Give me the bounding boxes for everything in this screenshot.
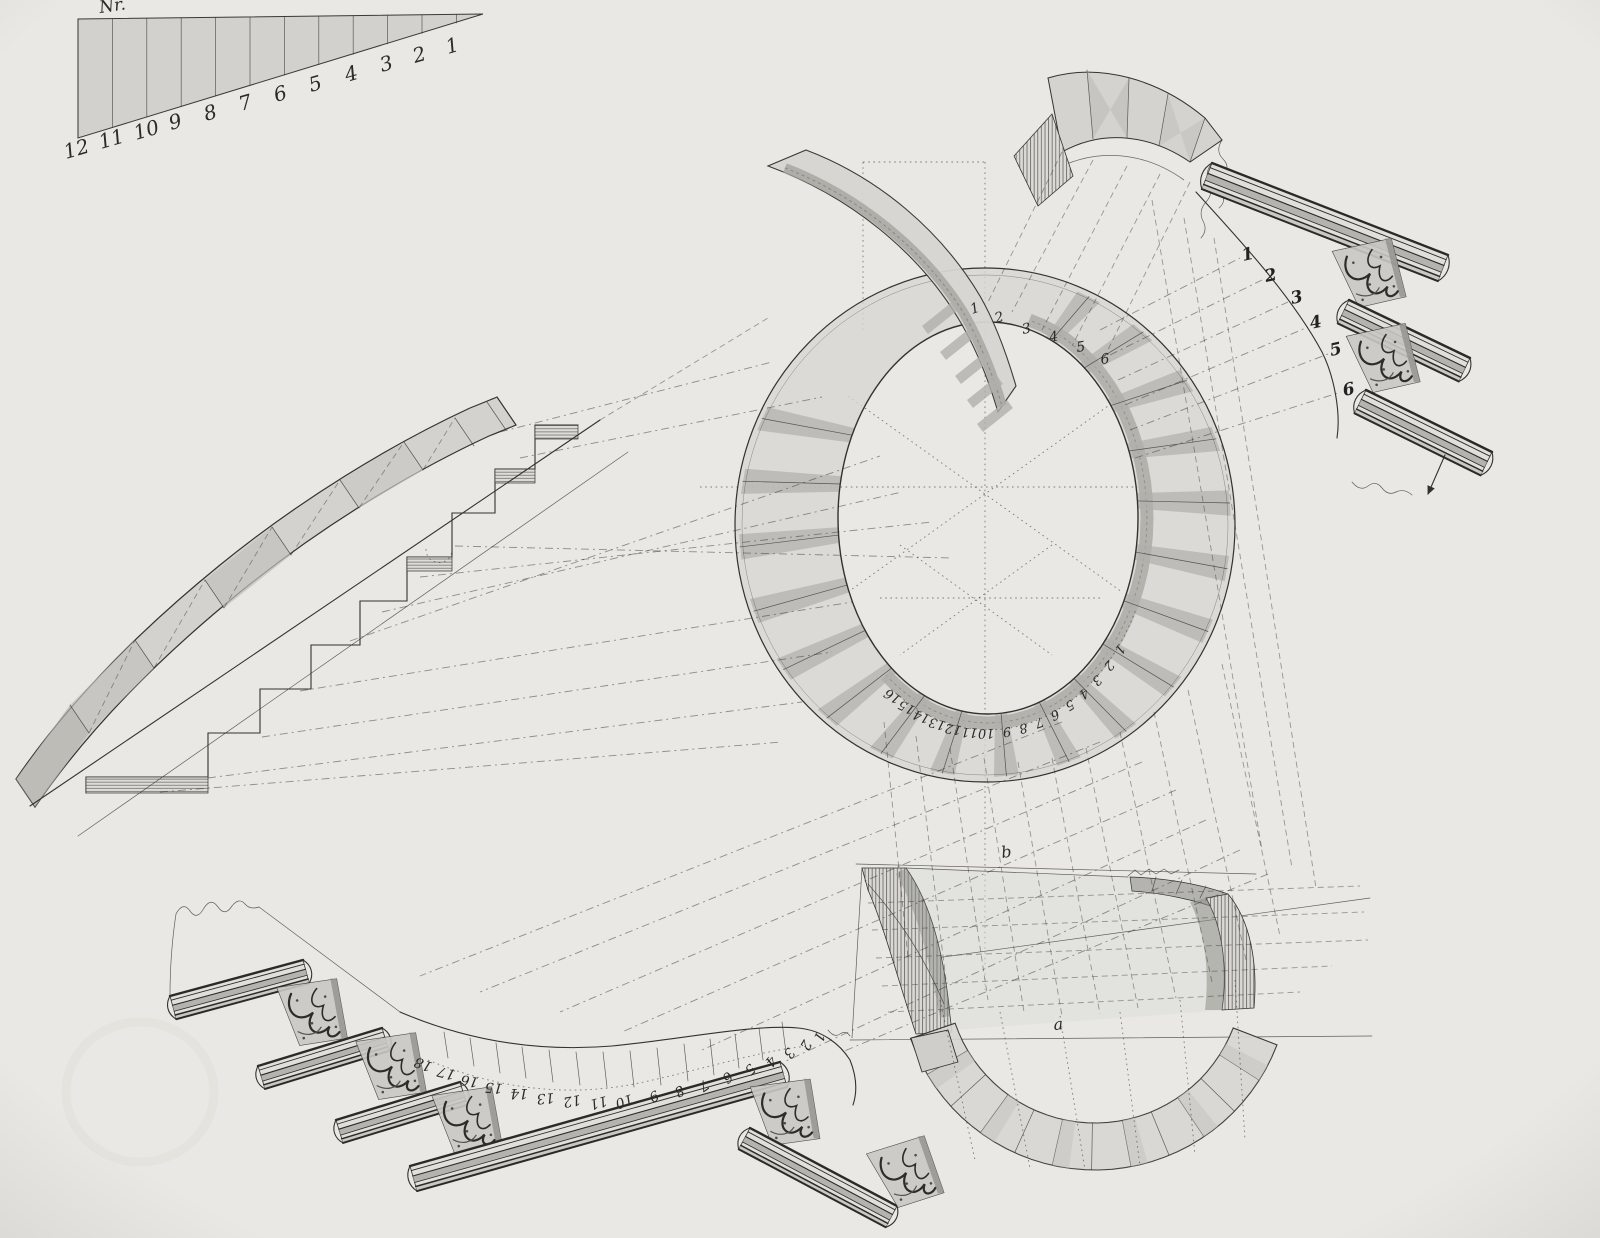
flight-tread-number: 15 xyxy=(484,1078,503,1095)
drawing-sheet: 121110987654321 Nr. xyxy=(0,0,1600,1238)
staircase-drawing: 121110987654321 Nr. xyxy=(0,0,1600,1238)
flight-tread-number: 16 xyxy=(459,1071,479,1090)
development-letter-a: a xyxy=(1053,1014,1064,1034)
winder-number: 6 xyxy=(1100,351,1111,368)
flight-tread-number: 14 xyxy=(510,1085,528,1101)
ring-step-number: 11 xyxy=(961,724,978,740)
flight-tread-number: 13 xyxy=(536,1089,555,1106)
ring-step-number: 12 xyxy=(944,720,963,737)
flight-tread-number: 12 xyxy=(562,1091,582,1110)
ring-step-number: 10 xyxy=(978,725,995,741)
